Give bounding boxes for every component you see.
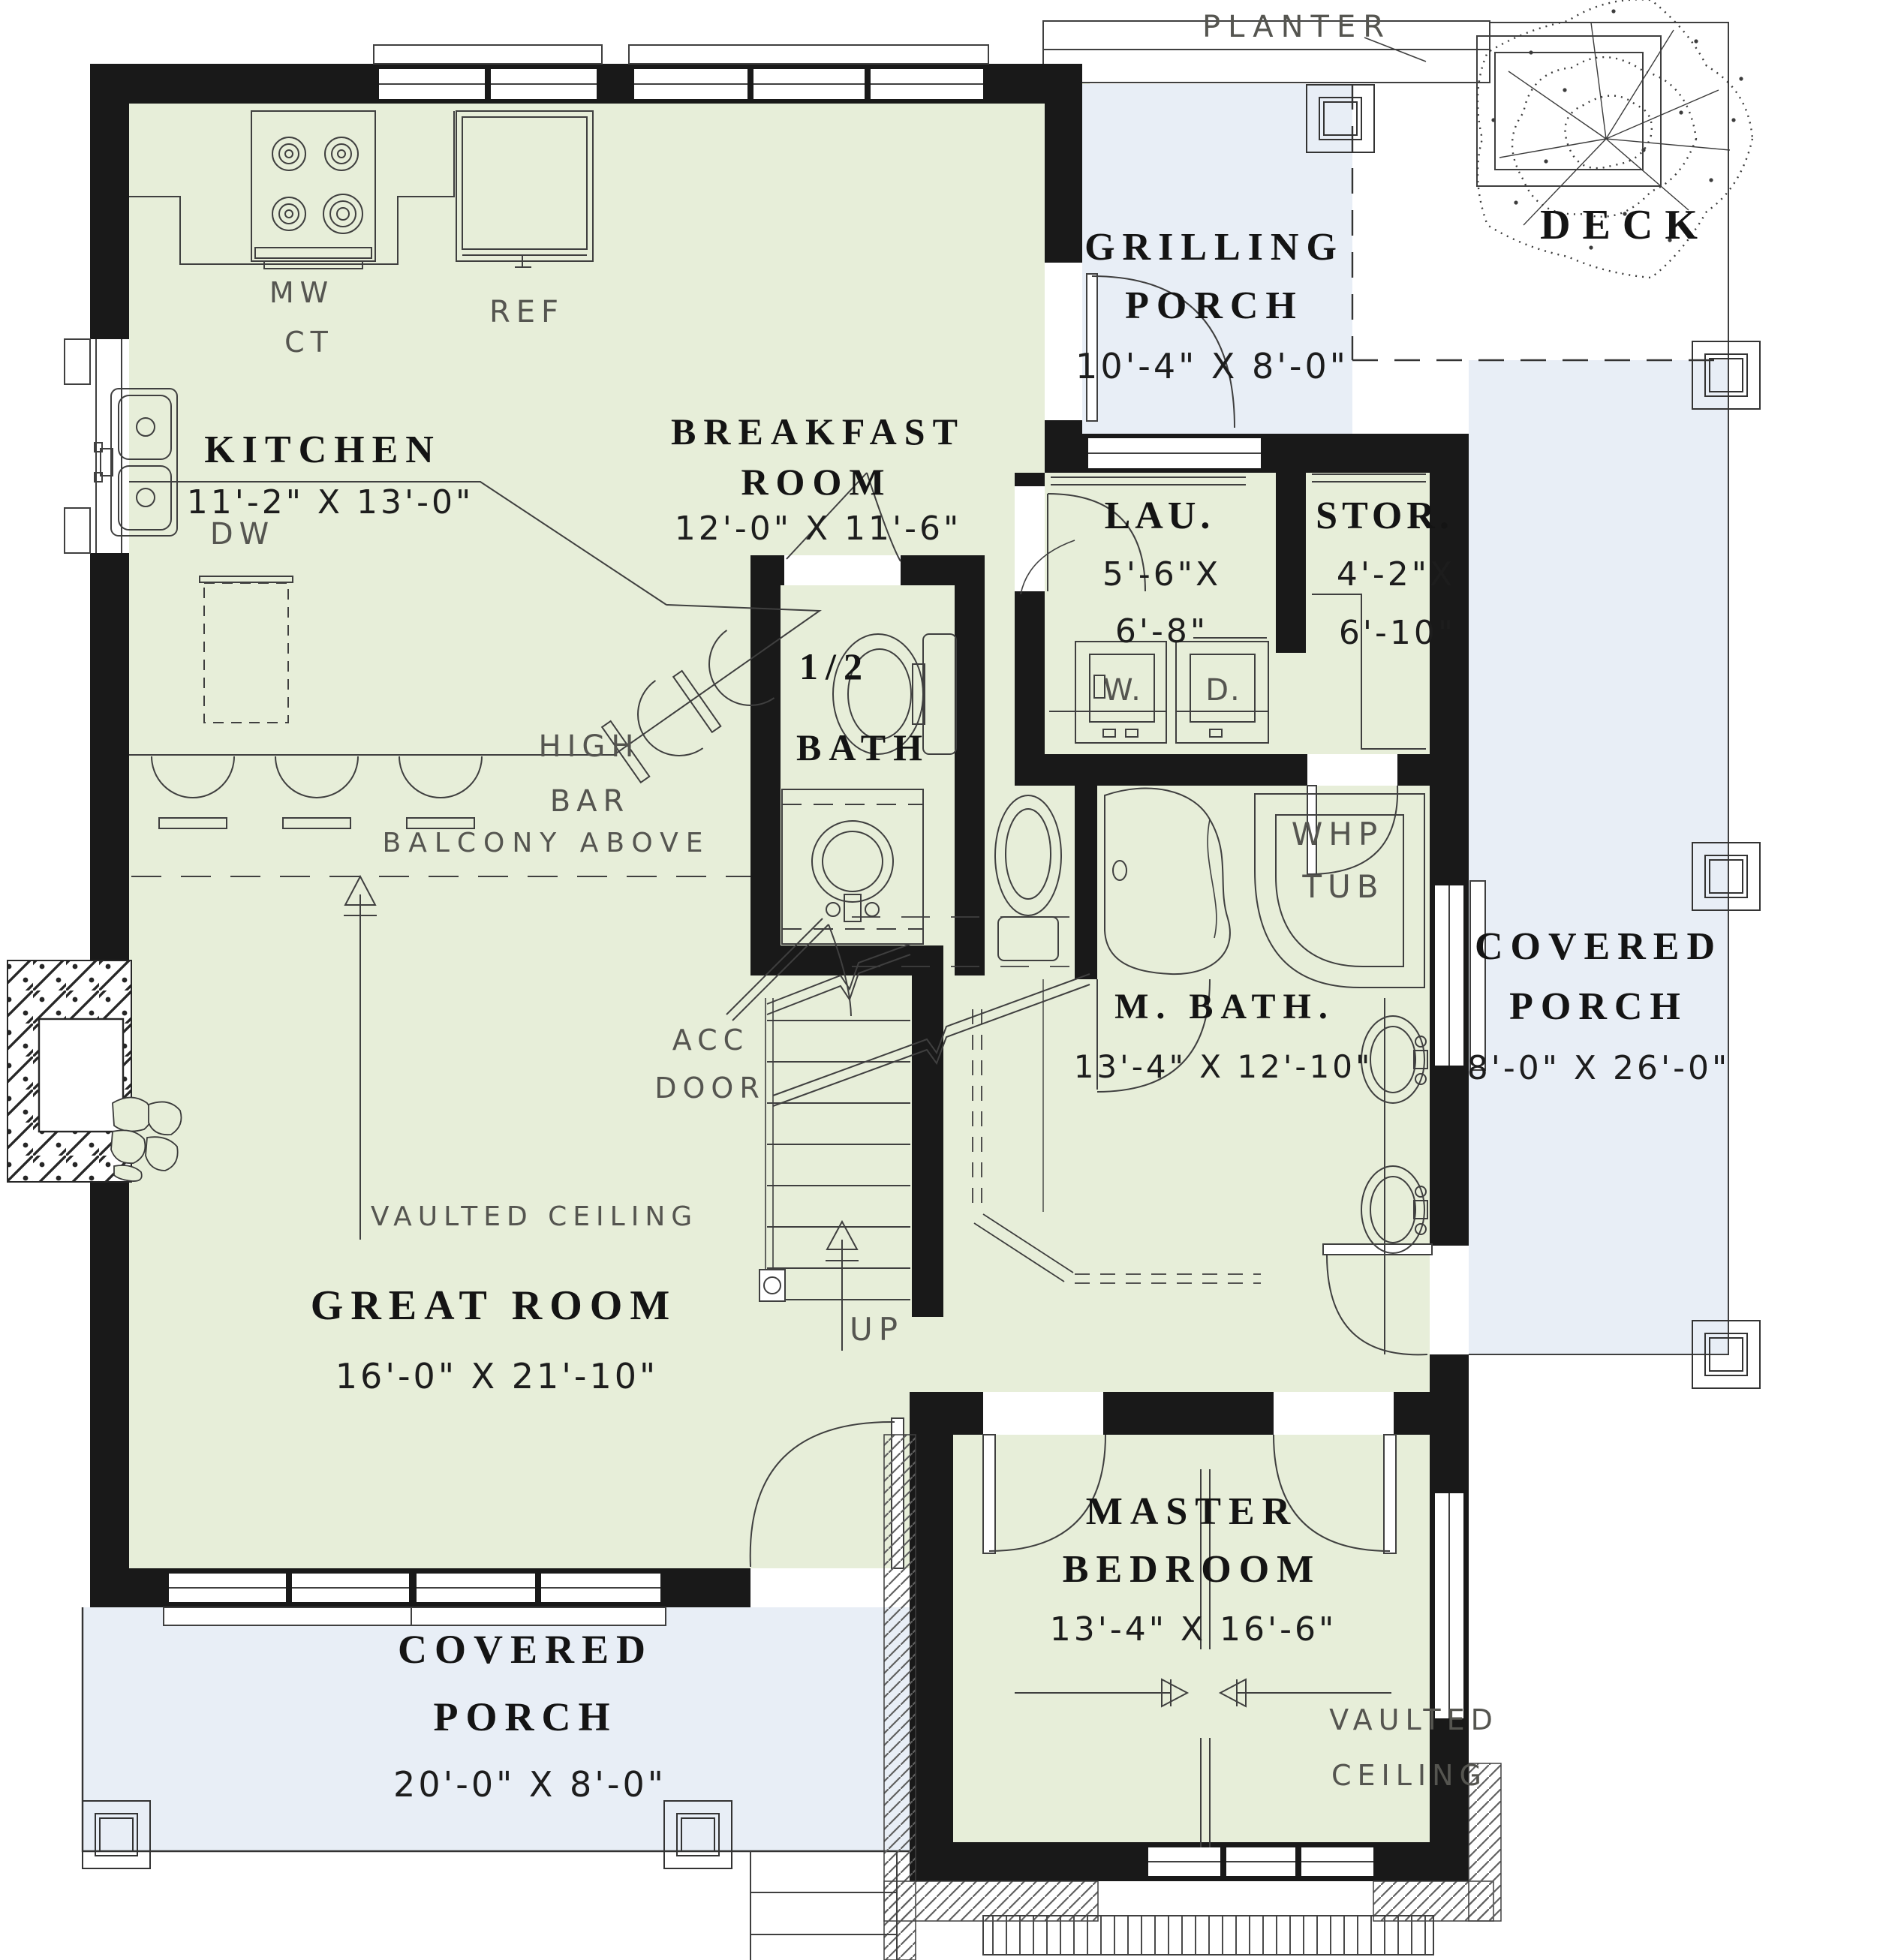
room-dims-master-bath: 13'-4" X 12'-10"	[1074, 1051, 1373, 1083]
room-label-laundry: LAU.	[1105, 497, 1215, 536]
vaulted-master-label-1: VAULTED	[1329, 1706, 1499, 1734]
whp-tub-label-1: WHP	[1292, 819, 1383, 850]
room-label-master-1: MASTER	[1086, 1493, 1298, 1532]
floor-plan: KITCHEN 11'-2" X 13'-0" BREAKFAST ROOM 1…	[0, 0, 1904, 1960]
up-label: UP	[850, 1314, 904, 1345]
room-dims-breakfast: 12'-0" X 11'-6"	[675, 513, 962, 546]
covered-porch-right-floor	[1469, 360, 1728, 1354]
room-label-grilling-1: GRILLING	[1084, 228, 1344, 267]
microwave-label: MW	[269, 278, 334, 307]
porch-steps	[750, 1851, 897, 1960]
room-label-half-bath-2: BATH	[796, 729, 930, 766]
room-label-breakfast-2: ROOM	[741, 463, 892, 501]
refrigerator-label: REF	[489, 297, 564, 327]
room-label-master-bath: M. BATH.	[1114, 989, 1335, 1025]
room-label-storage: STOR.	[1316, 497, 1454, 536]
room-label-great-room: GREAT ROOM	[311, 1285, 677, 1327]
room-dims-covered-porch-front: 20'-0" X 8'-0"	[393, 1767, 666, 1802]
deck-board-strip	[983, 1916, 1433, 1955]
room-dims-grilling: 10'-4" X 8'-0"	[1075, 349, 1349, 383]
planter-label: PLANTER	[1202, 12, 1391, 42]
high-bar-label-1: HIGH	[539, 732, 640, 762]
room-dims-laundry-2: 6'-8"	[1115, 615, 1208, 648]
room-label-covered-porch-right-2: PORCH	[1509, 988, 1688, 1027]
dryer-label: D.	[1205, 675, 1241, 705]
balcony-above-label: BALCONY ABOVE	[383, 830, 711, 857]
room-dims-kitchen: 11'-2" X 13'-0"	[187, 486, 474, 519]
room-label-half-bath-1: 1/2	[799, 648, 870, 685]
acc-door-label-1: ACC	[672, 1026, 749, 1054]
room-dims-laundry-1: 5'-6"X	[1102, 558, 1221, 591]
vaulted-ceiling-great-label: VAULTED CEILING	[371, 1204, 698, 1231]
washer-label: W.	[1103, 675, 1142, 705]
room-dims-master: 13'-4" X 16'-6"	[1050, 1613, 1337, 1646]
room-label-covered-porch-front-2: PORCH	[434, 1697, 618, 1737]
room-label-breakfast-1: BREAKFAST	[671, 413, 965, 450]
vaulted-master-label-2: CEILING	[1331, 1761, 1487, 1790]
acc-door-label-2: DOOR	[654, 1074, 765, 1102]
whp-tub-label-2: TUB	[1302, 871, 1384, 903]
room-dims-great-room: 16'-0" X 21'-10"	[335, 1359, 658, 1393]
room-dims-storage-2: 6'-10"	[1339, 617, 1456, 650]
room-label-covered-porch-right-1: COVERED	[1475, 927, 1722, 966]
dishwasher-label: DW	[210, 519, 275, 549]
room-dims-covered-porch-right: 8'-0" X 26'-0"	[1467, 1052, 1731, 1085]
room-label-covered-porch-front-1: COVERED	[398, 1629, 653, 1670]
room-label-grilling-2: PORCH	[1125, 287, 1304, 326]
room-label-master-2: BEDROOM	[1063, 1550, 1321, 1589]
cooktop-label: CT	[284, 328, 334, 356]
room-label-kitchen: KITCHEN	[204, 431, 441, 470]
room-label-deck: DECK	[1540, 204, 1710, 246]
room-dims-storage-1: 4'-2"X	[1337, 558, 1455, 591]
high-bar-label-2: BAR	[550, 786, 630, 816]
